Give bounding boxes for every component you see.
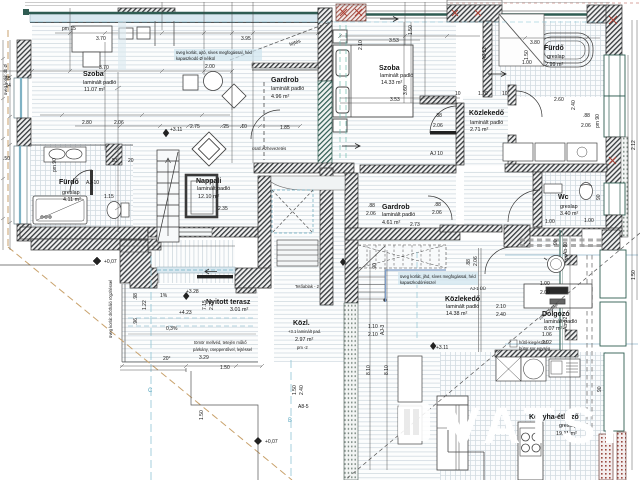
svg-text:.25: .25 bbox=[222, 124, 229, 130]
svg-text:.88: .88 bbox=[435, 113, 442, 119]
svg-text:kapaszkodórésszel: kapaszkodórésszel bbox=[400, 280, 436, 285]
svg-text:üveg korlát drótháló rögzítéss: üveg korlát drótháló rögzítéssel bbox=[108, 280, 113, 338]
svg-text:B: B bbox=[288, 418, 292, 424]
svg-text:2.10: 2.10 bbox=[496, 304, 506, 310]
svg-text:Szoba: Szoba bbox=[83, 71, 104, 78]
svg-text:1%: 1% bbox=[160, 293, 168, 299]
svg-text:.88: .88 bbox=[466, 259, 472, 266]
svg-text:greslap: greslap bbox=[547, 54, 565, 60]
svg-text:7.15: 7.15 bbox=[202, 300, 208, 310]
svg-text:90: 90 bbox=[597, 386, 603, 392]
svg-text:Nappali: Nappali bbox=[196, 178, 221, 185]
svg-text:14.33 m²: 14.33 m² bbox=[381, 80, 402, 86]
svg-text:2.06: 2.06 bbox=[114, 120, 124, 126]
svg-text:2.06: 2.06 bbox=[432, 210, 442, 216]
svg-text:Ab-92: Ab-92 bbox=[563, 316, 569, 330]
svg-text:Gardrob: Gardrob bbox=[271, 77, 299, 84]
svg-text:.88: .88 bbox=[583, 113, 590, 119]
svg-text:AJ 10: AJ 10 bbox=[430, 151, 443, 157]
svg-text:VATSI: VATSI bbox=[446, 397, 624, 454]
svg-text:Szoba: Szoba bbox=[379, 65, 400, 72]
svg-text:2.02: 2.02 bbox=[542, 340, 552, 346]
svg-text:11.07 m²: 11.07 m² bbox=[84, 87, 105, 93]
svg-text:1.15: 1.15 bbox=[104, 194, 114, 200]
svg-text:laminált padló: laminált padló bbox=[446, 304, 479, 310]
svg-text:20°: 20° bbox=[163, 356, 171, 362]
svg-text:2.97 m²: 2.97 m² bbox=[295, 337, 313, 343]
svg-text:C: C bbox=[148, 388, 153, 394]
svg-text:Gardrob: Gardrob bbox=[382, 204, 410, 211]
svg-text:2.40: 2.40 bbox=[496, 312, 506, 318]
svg-text:2.40: 2.40 bbox=[299, 385, 305, 395]
svg-text:10: 10 bbox=[455, 91, 461, 97]
svg-text:2.12: 2.12 bbox=[631, 140, 637, 150]
svg-text:3.70: 3.70 bbox=[99, 65, 109, 71]
svg-text:2.40: 2.40 bbox=[571, 100, 577, 110]
svg-text:0,3%: 0,3% bbox=[166, 326, 178, 332]
svg-text:.88: .88 bbox=[368, 203, 375, 209]
svg-text:laminált padló: laminált padló bbox=[544, 319, 577, 325]
svg-text:Közl.: Közl. bbox=[293, 320, 310, 327]
svg-text:3.40 m²: 3.40 m² bbox=[560, 211, 578, 217]
svg-text:1.00: 1.00 bbox=[584, 218, 594, 224]
svg-text:1.85: 1.85 bbox=[280, 125, 290, 131]
svg-text:2.00: 2.00 bbox=[205, 64, 215, 70]
svg-text:2.06: 2.06 bbox=[473, 256, 479, 266]
svg-text:2.10: 2.10 bbox=[358, 40, 364, 50]
svg-text:1.50: 1.50 bbox=[220, 365, 230, 371]
svg-text:üveg korlát db Ø: üveg korlát db Ø bbox=[3, 64, 8, 95]
svg-text:1.50: 1.50 bbox=[292, 385, 298, 395]
svg-text:laminált padló: laminált padló bbox=[197, 186, 230, 192]
svg-text:3.95: 3.95 bbox=[241, 36, 251, 42]
svg-text:pm 90: pm 90 bbox=[595, 114, 601, 128]
svg-text:üveg korlát, ajtó, síves megfo: üveg korlát, ajtó, síves megfogással, hé… bbox=[176, 50, 253, 55]
svg-text:Közlekedő: Közlekedő bbox=[469, 110, 504, 117]
svg-text:2.80: 2.80 bbox=[82, 120, 92, 126]
svg-text:1.20: 1.20 bbox=[478, 91, 488, 97]
svg-text:Ab-90: Ab-90 bbox=[563, 241, 569, 255]
svg-text:10: 10 bbox=[502, 91, 508, 97]
svg-text:1.06: 1.06 bbox=[542, 332, 552, 338]
svg-text:90: 90 bbox=[596, 194, 602, 200]
svg-text:párkány, cseppentővel, lejtéss: párkány, cseppentővel, lejtéssel bbox=[193, 347, 252, 352]
svg-text:3.80: 3.80 bbox=[530, 40, 540, 46]
svg-text:AJ-10: AJ-10 bbox=[86, 180, 99, 186]
svg-text:2.00: 2.00 bbox=[540, 290, 550, 296]
svg-text:2.24: 2.24 bbox=[209, 300, 215, 310]
svg-text:1.50: 1.50 bbox=[408, 25, 414, 35]
svg-text:laminált padló: laminált padló bbox=[271, 86, 304, 92]
svg-text:1.22: 1.22 bbox=[142, 300, 148, 310]
svg-text:AJ-1 ÜÜ: AJ-1 ÜÜ bbox=[470, 286, 486, 291]
svg-text:2.60: 2.60 bbox=[554, 97, 564, 103]
svg-text:3.01 m²: 3.01 m² bbox=[230, 307, 248, 313]
svg-text:Fürdő: Fürdő bbox=[544, 45, 564, 52]
svg-text:1.50: 1.50 bbox=[631, 270, 637, 280]
svg-text:1.00: 1.00 bbox=[540, 281, 550, 287]
svg-text:4.96 m²: 4.96 m² bbox=[271, 94, 289, 100]
svg-text:+4.23: +4.23 bbox=[179, 310, 192, 316]
svg-text:2.73: 2.73 bbox=[410, 222, 420, 228]
svg-text:Wc: Wc bbox=[558, 194, 569, 201]
svg-text:üveg korlát, jihd, síves megfo: üveg korlát, jihd, síves megfogással, hé… bbox=[400, 274, 476, 279]
svg-text:+3.11: +3.11 bbox=[170, 127, 182, 133]
svg-text:4.61 m²: 4.61 m² bbox=[382, 220, 400, 226]
svg-text:1.50: 1.50 bbox=[524, 50, 530, 60]
svg-text:3.53: 3.53 bbox=[390, 97, 400, 103]
svg-text:+0,07: +0,07 bbox=[104, 259, 117, 265]
svg-text:53: 53 bbox=[112, 158, 118, 164]
svg-text:greslap: greslap bbox=[62, 190, 80, 196]
svg-text:.90: .90 bbox=[372, 263, 378, 270]
svg-text:laminált padló: laminált padló bbox=[380, 73, 413, 79]
svg-text:2.10: 2.10 bbox=[368, 332, 378, 338]
svg-text:1.50: 1.50 bbox=[199, 410, 205, 420]
svg-text:.10: .10 bbox=[240, 124, 247, 130]
svg-text:2.75: 2.75 bbox=[190, 124, 200, 130]
svg-text:1.10: 1.10 bbox=[368, 324, 378, 330]
svg-text:AJ-3: AJ-3 bbox=[380, 325, 386, 336]
svg-text:14.38 m²: 14.38 m² bbox=[446, 311, 467, 317]
svg-text:20: 20 bbox=[128, 158, 134, 164]
svg-text:bútor sor egység: bútor sor egység bbox=[519, 346, 551, 351]
svg-text:3.60: 3.60 bbox=[403, 85, 409, 95]
svg-text:laminált padló: laminált padló bbox=[382, 212, 415, 218]
svg-text:pm 15: pm 15 bbox=[62, 26, 76, 32]
svg-text:csatl.vízhevezetés: csatl.vízhevezetés bbox=[252, 146, 286, 151]
svg-text:2.06: 2.06 bbox=[366, 211, 376, 217]
svg-text:A8-5: A8-5 bbox=[298, 404, 309, 410]
svg-text:8.10: 8.10 bbox=[366, 365, 372, 375]
svg-text:pm -2: pm -2 bbox=[297, 345, 308, 350]
svg-text:Fürdő: Fürdő bbox=[59, 179, 79, 186]
svg-text:8.10: 8.10 bbox=[384, 365, 390, 375]
svg-text:12.10 m²: 12.10 m² bbox=[198, 194, 219, 200]
svg-text:1.00: 1.00 bbox=[545, 219, 555, 225]
svg-text:.96: .96 bbox=[133, 318, 139, 325]
svg-text:.98: .98 bbox=[133, 293, 139, 300]
svg-text:3.70: 3.70 bbox=[96, 36, 106, 42]
svg-text:+3.1 laminált pad.: +3.1 laminált pad. bbox=[288, 329, 321, 334]
svg-text:3.53: 3.53 bbox=[389, 38, 399, 44]
svg-text:Tetőablak - 2: Tetőablak - 2 bbox=[295, 284, 320, 289]
svg-text:2.06: 2.06 bbox=[581, 123, 591, 129]
svg-text:2.06: 2.06 bbox=[433, 123, 443, 129]
svg-text:laminált padló: laminált padló bbox=[470, 120, 503, 126]
svg-text:2.35: 2.35 bbox=[218, 206, 228, 212]
svg-text:90: 90 bbox=[553, 239, 559, 245]
svg-text:greslap: greslap bbox=[560, 204, 578, 210]
svg-text:.88: .88 bbox=[434, 202, 441, 208]
svg-text:pm 90: pm 90 bbox=[52, 158, 58, 172]
svg-text:.50: .50 bbox=[3, 156, 10, 162]
svg-text:kapaszkodó Ø nélkül: kapaszkodó Ø nélkül bbox=[176, 56, 215, 61]
svg-text:AJ-12: AJ-12 bbox=[482, 47, 488, 60]
svg-text:tömör mellvéd, tetején műkő: tömör mellvéd, tetején műkő bbox=[194, 340, 247, 345]
svg-text:+0,07: +0,07 bbox=[265, 439, 278, 445]
svg-text:4.11 m²: 4.11 m² bbox=[63, 197, 81, 203]
svg-text:Közlekedő: Közlekedő bbox=[445, 296, 480, 303]
svg-text:3.29: 3.29 bbox=[199, 355, 209, 361]
svg-text:2.71 m²: 2.71 m² bbox=[470, 127, 488, 133]
svg-text:+3.28: +3.28 bbox=[186, 289, 199, 295]
svg-text:laminált padló: laminált padló bbox=[83, 80, 116, 86]
svg-text:+3.11: +3.11 bbox=[436, 345, 448, 351]
svg-text:2.99 m²: 2.99 m² bbox=[545, 62, 563, 68]
